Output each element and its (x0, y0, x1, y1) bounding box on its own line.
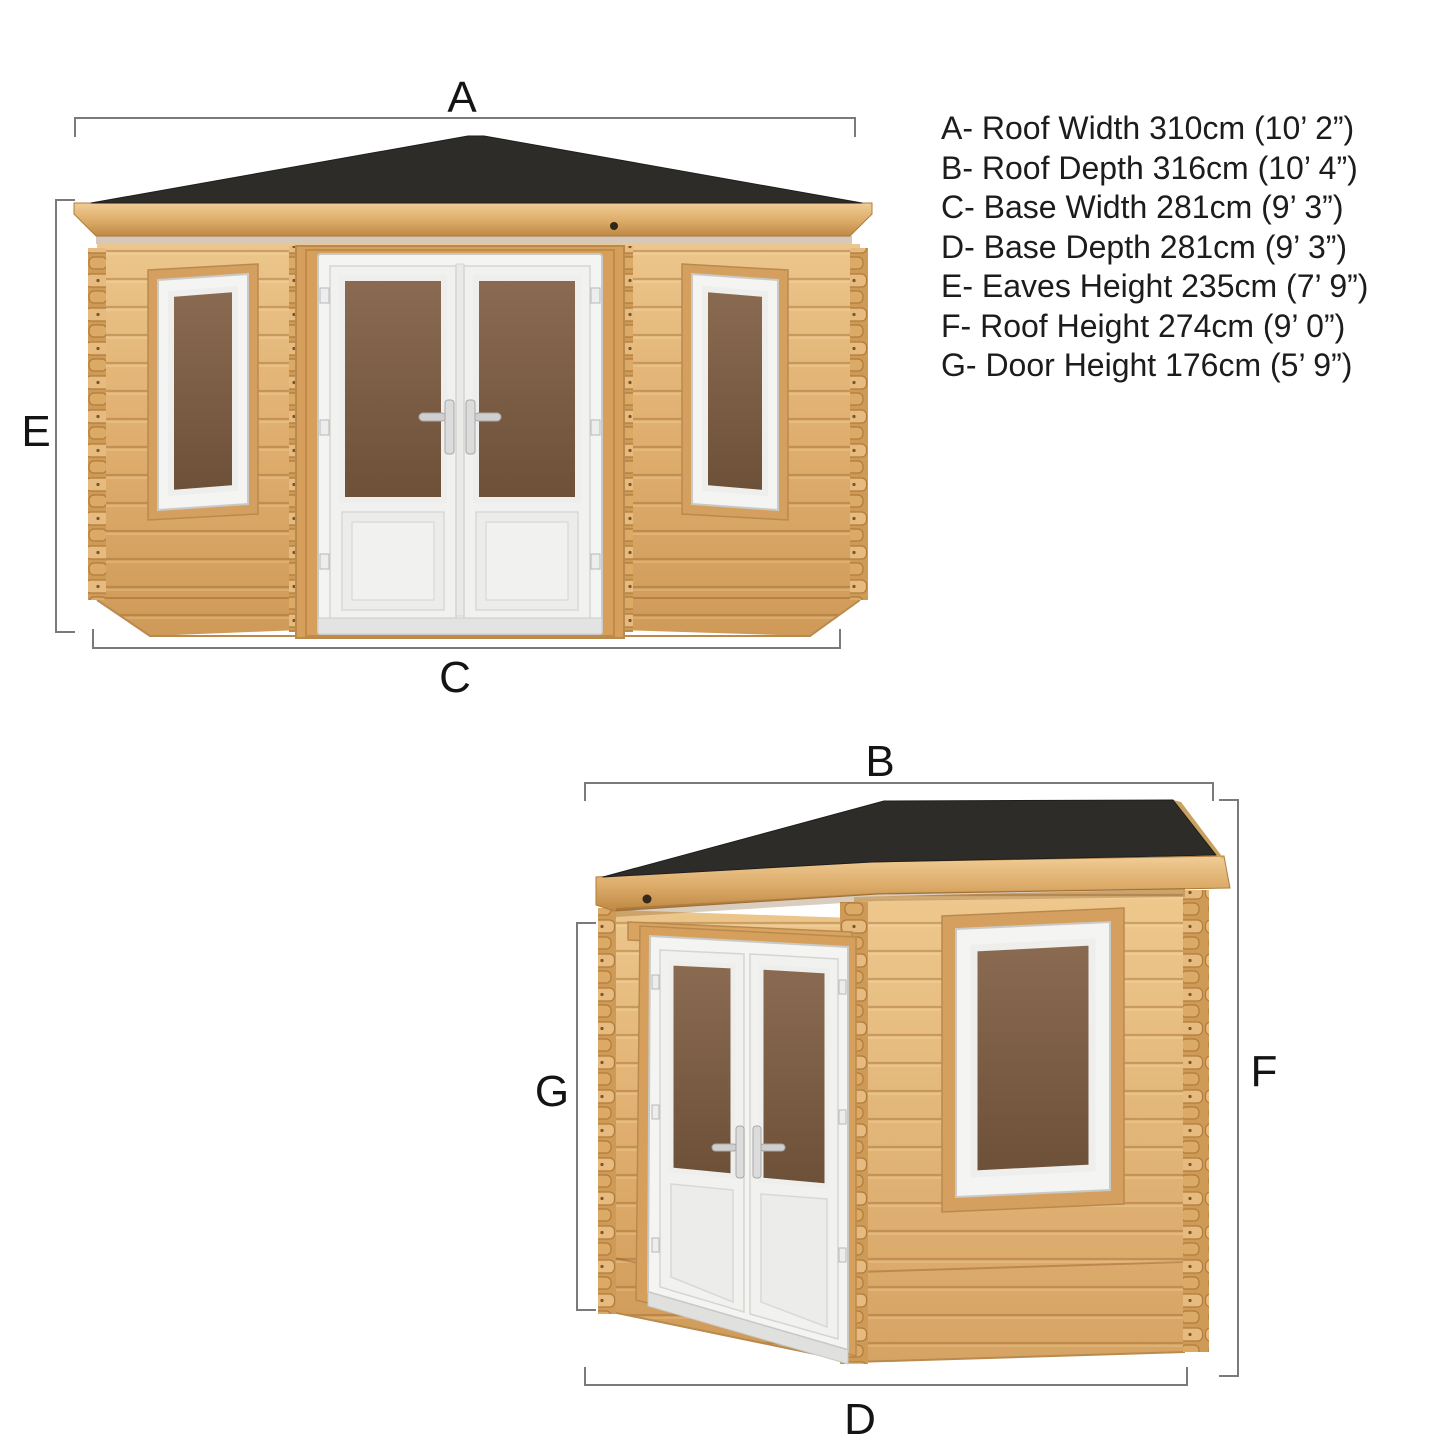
legend-item-door-height: G- Door Height 176cm (5’ 9”) (941, 346, 1368, 386)
dim-label-roof-width: A (447, 73, 477, 122)
front-left-window (148, 264, 258, 520)
dim-line-eaves-height (56, 200, 74, 632)
front-left-outer-post (88, 248, 106, 600)
dim-label-door-height: G (535, 1067, 569, 1116)
side-door-right-handle-plate (753, 1126, 761, 1178)
legend-item-roof-width: A- Roof Width 310cm (10’ 2”) (941, 109, 1368, 149)
side-door-right-glass (761, 967, 827, 1186)
front-right-outer-post (850, 248, 868, 600)
side-left-edge-post (598, 908, 616, 1314)
legend-item-base-depth: D- Base Depth 281cm (9’ 3”) (941, 228, 1368, 268)
front-right-window (682, 264, 788, 520)
front-elevation-view: A E C (21, 73, 872, 702)
front-door-right-handle-lever (474, 413, 501, 421)
legend-item-roof-depth: B- Roof Depth 316cm (10’ 4”) (941, 149, 1368, 189)
legend-item-base-width: C- Base Width 281cm (9’ 3”) (941, 188, 1368, 228)
front-double-doors (296, 246, 624, 638)
front-door-right-glass (476, 278, 578, 500)
front-roof-felt (91, 136, 862, 203)
dim-line-door-height (577, 923, 595, 1310)
front-right-window-glass (705, 289, 765, 493)
front-door-right-panel-inset (486, 522, 568, 600)
dim-line-base-depth (585, 1368, 1187, 1385)
side-door-left-handle-lever (712, 1144, 737, 1151)
dim-label-roof-depth: B (865, 737, 894, 786)
front-door-left-glass (342, 278, 444, 500)
corner-side-view: B F G D (535, 737, 1278, 1444)
front-door-sill (318, 618, 602, 634)
legend-item-eaves-height: E- Eaves Height 235cm (7’ 9”) (941, 267, 1368, 307)
front-left-window-glass (171, 289, 235, 493)
dim-label-base-width: C (439, 653, 471, 702)
product-dimension-diagram: A E C (0, 0, 1445, 1445)
dim-label-roof-height: F (1251, 1047, 1278, 1096)
front-door-mullion (456, 264, 464, 616)
front-door-left-handle-lever (419, 413, 446, 421)
front-door-left-panel-inset (352, 522, 434, 600)
front-door-right-handle-plate (466, 400, 475, 454)
side-fascia-knot (643, 895, 652, 904)
side-door-right-handle-lever (760, 1144, 785, 1151)
side-window (942, 908, 1124, 1212)
dim-label-base-depth: D (844, 1395, 876, 1444)
front-door-left-handle-plate (445, 400, 454, 454)
front-roof (74, 136, 872, 244)
front-roof-fascia (74, 203, 872, 236)
side-window-glass (974, 942, 1092, 1174)
legend-item-roof-height: F- Roof Height 274cm (9’ 0”) (941, 307, 1368, 347)
dim-label-eaves-height: E (21, 407, 50, 456)
side-right-edge-post (1183, 890, 1209, 1352)
side-door-left-handle-plate (736, 1126, 744, 1178)
front-fascia-knot (610, 222, 618, 230)
dim-line-roof-depth (585, 783, 1213, 800)
front-eave-shadow (96, 236, 852, 244)
dimension-legend: A- Roof Width 310cm (10’ 2”) B- Roof Dep… (941, 109, 1368, 386)
side-double-doors (628, 922, 856, 1364)
